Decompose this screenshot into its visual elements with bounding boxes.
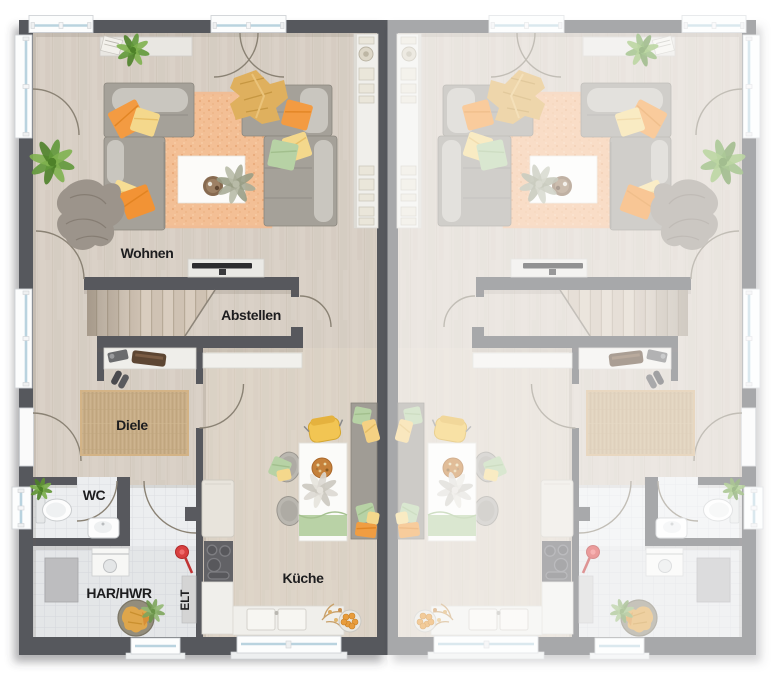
svg-text:WC: WC (83, 487, 106, 503)
svg-text:Küche: Küche (282, 570, 324, 586)
svg-text:ELT: ELT (180, 590, 192, 611)
svg-text:Abstellen: Abstellen (221, 307, 281, 323)
svg-text:Diele: Diele (116, 417, 148, 433)
svg-text:HAR/HWR: HAR/HWR (86, 585, 151, 601)
svg-text:Wohnen: Wohnen (121, 245, 174, 261)
